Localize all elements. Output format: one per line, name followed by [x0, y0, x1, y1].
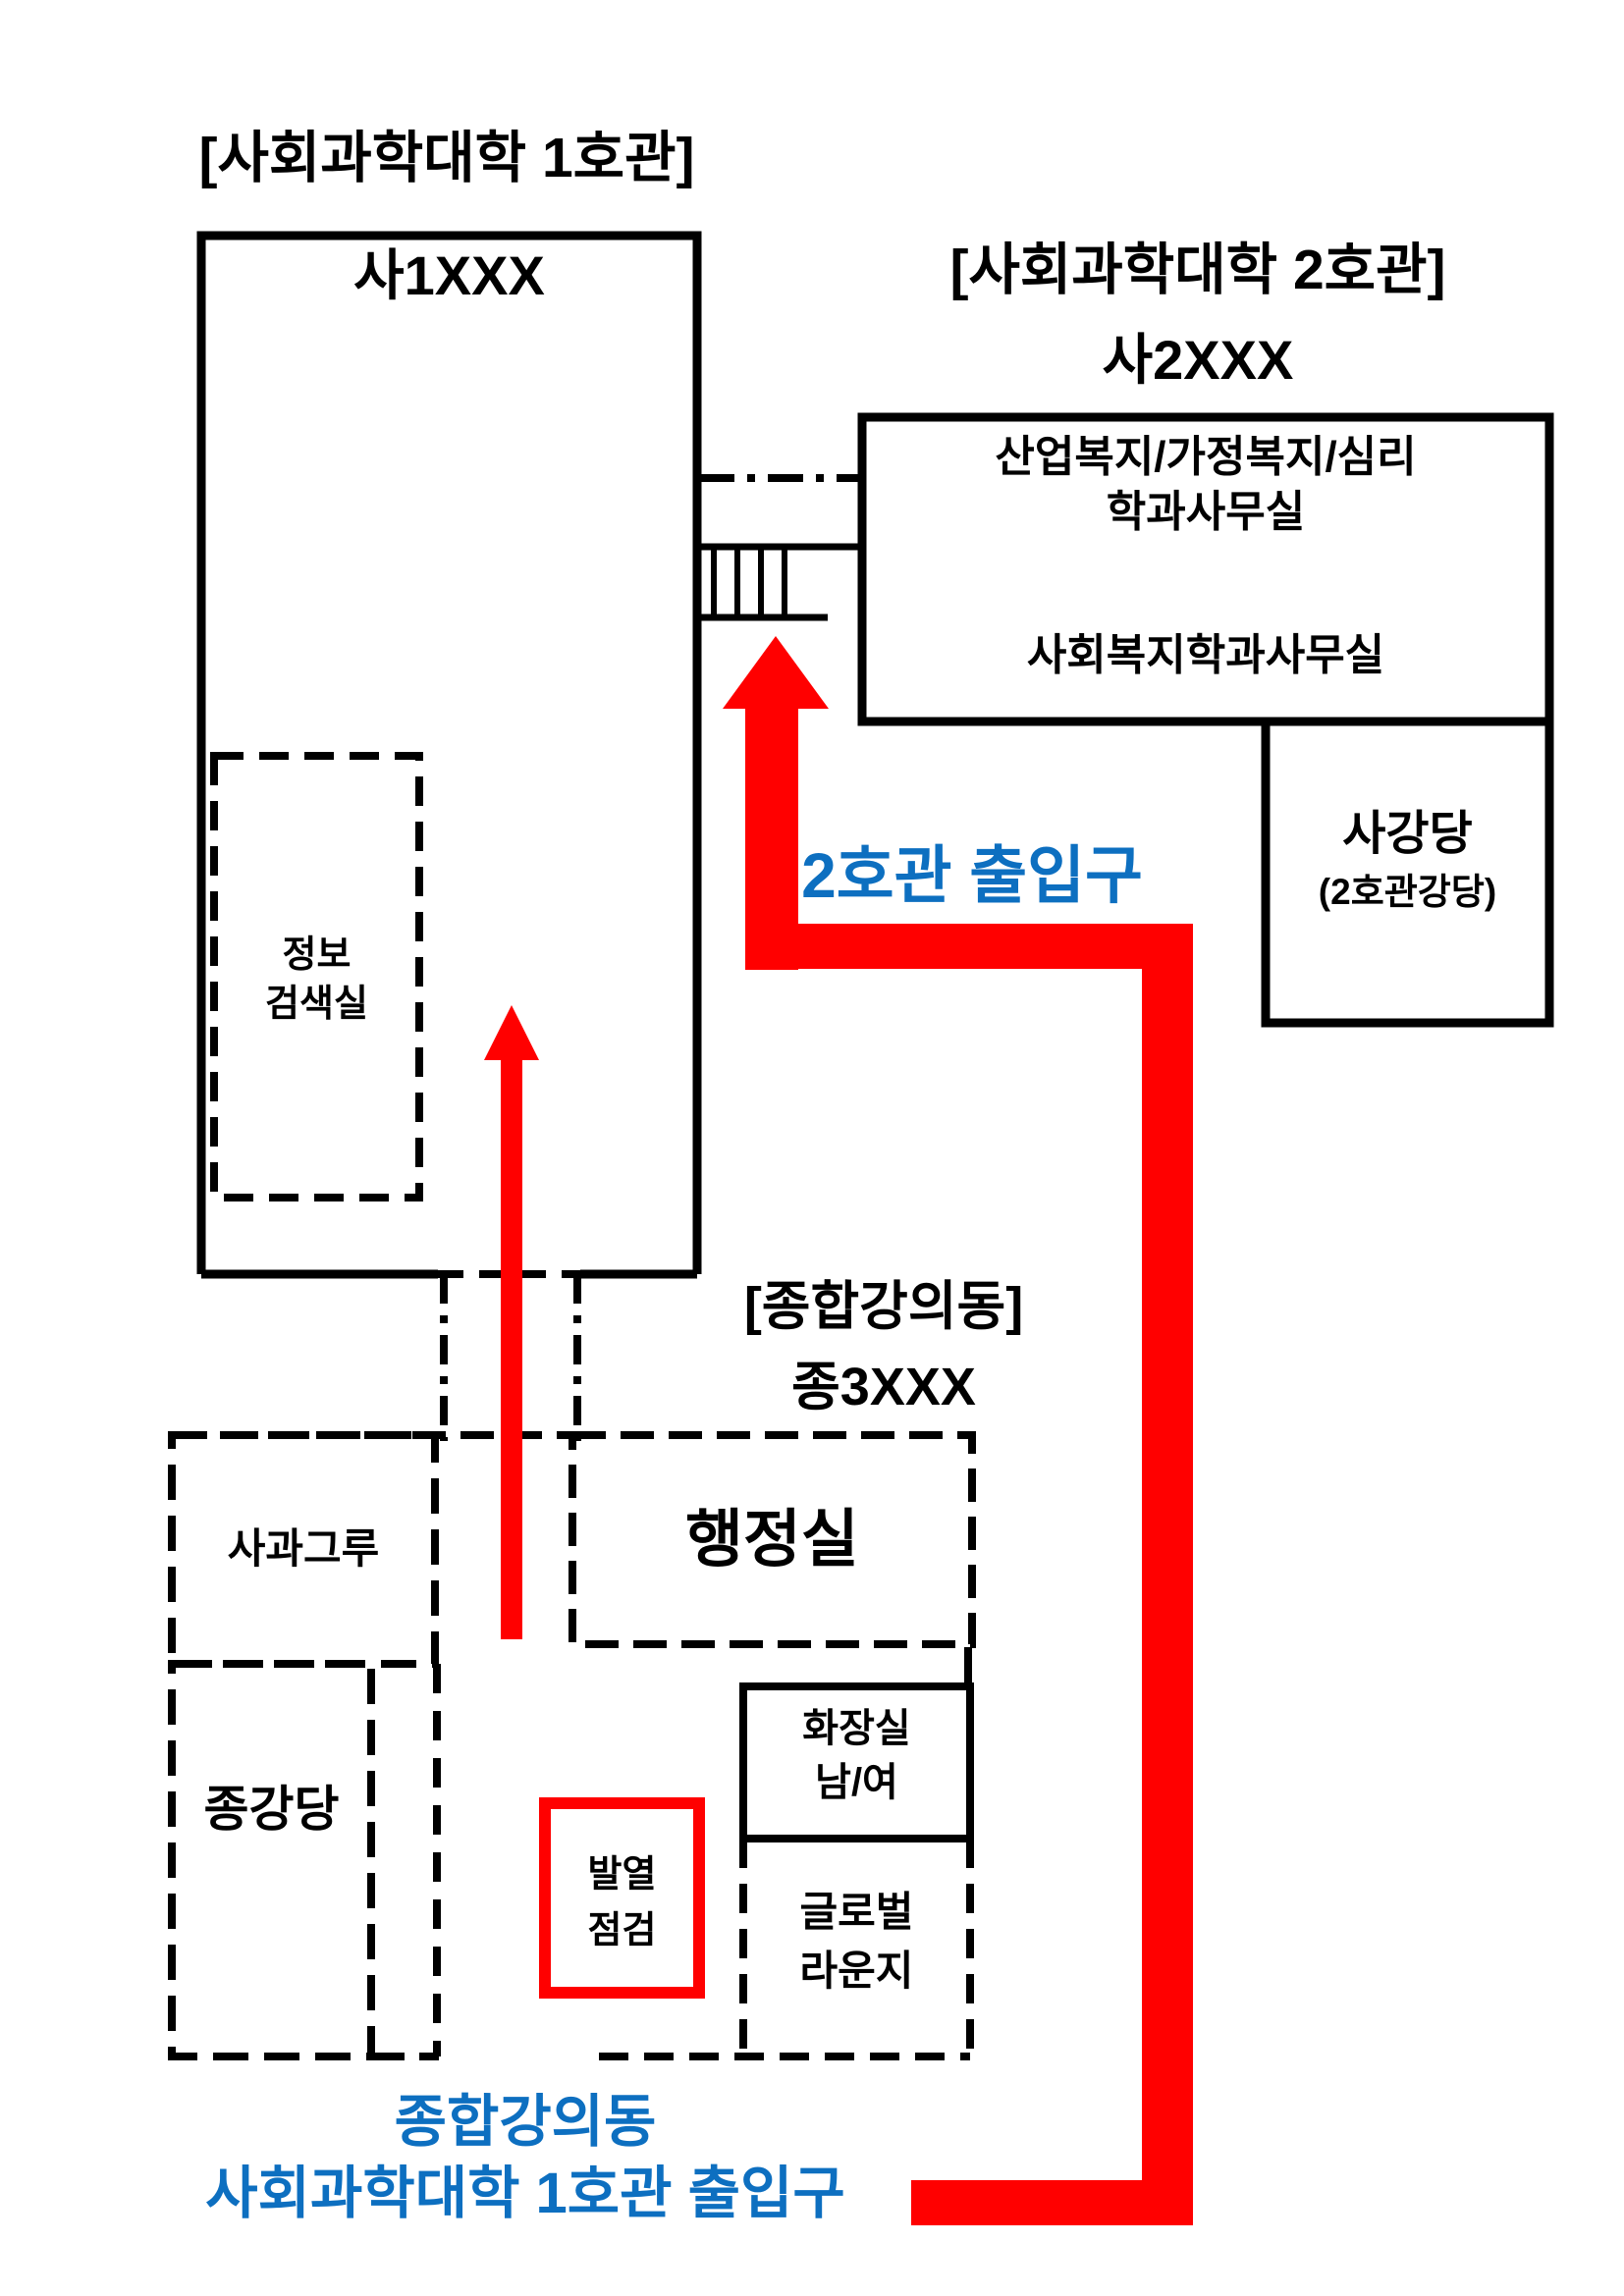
fever-check-label: 발열 점검: [545, 1847, 699, 1959]
admin-office-label: 행정실: [572, 1500, 972, 1578]
building1-title: [사회과학대학 1호관]: [93, 124, 800, 193]
lecture-building-title: [종합강의동]: [677, 1274, 1090, 1341]
restroom-label: 화장실 남/여: [743, 1702, 970, 1810]
route-right-vertical-shaft: [1142, 924, 1193, 2225]
building2-room-code: 사2XXX: [839, 326, 1556, 395]
route-horizontal-connector: [745, 924, 1193, 969]
jong-auditorium-box: [172, 1664, 371, 2056]
welfare-office-label: 사회복지학과사무실: [862, 628, 1549, 682]
dept-offices-label: 산업복지/가정복지/심리 학과사무실: [862, 430, 1549, 540]
route-building1-shaft: [501, 1054, 522, 1639]
sa-auditorium-sublabel: (2호관강당): [1266, 870, 1549, 915]
apple-grove-room-label: 사과그루: [172, 1523, 435, 1575]
info-search-room-label: 정보 검색실: [214, 931, 419, 1029]
global-lounge-label: 글로벌 라운지: [743, 1883, 970, 2000]
route-arrowhead-building1: [484, 1005, 539, 1060]
lecture-building-code: 종3XXX: [677, 1355, 1090, 1421]
main-entrance-label: 종합강의동 사회과학대학 1호관 출입구: [88, 2087, 962, 2229]
route-arrowhead-building2: [723, 636, 829, 709]
building2-entrance-label: 2호관 출입구: [776, 836, 1168, 915]
campus-floor-plan: [사회과학대학 1호관] 사1XXX 정보 검색실 [사회과학대학 2호관] 사…: [0, 0, 1624, 2296]
building2-title: [사회과학대학 2호관]: [839, 236, 1556, 305]
sa-auditorium-label: 사강당: [1266, 805, 1549, 864]
jong-auditorium-label: 종강당: [172, 1779, 371, 1841]
building1-room-code: 사1XXX: [201, 241, 697, 310]
